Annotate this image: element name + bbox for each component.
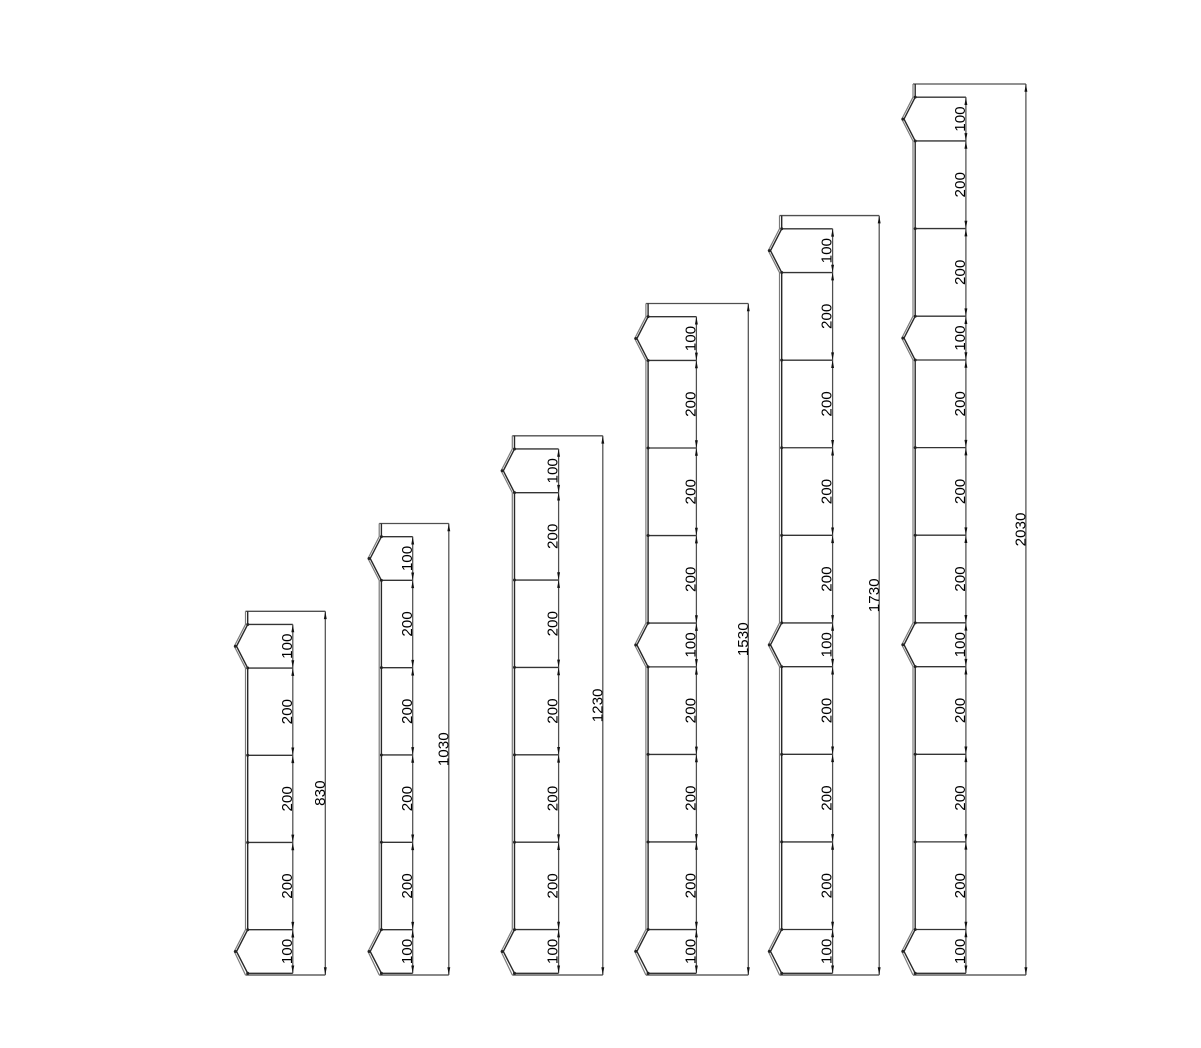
svg-text:100: 100	[819, 939, 836, 964]
svg-text:100: 100	[545, 458, 562, 483]
svg-text:200: 200	[952, 172, 969, 197]
svg-text:100: 100	[952, 632, 969, 657]
svg-text:1030: 1030	[436, 732, 453, 766]
svg-text:200: 200	[819, 479, 836, 504]
svg-text:100: 100	[279, 634, 296, 659]
svg-text:200: 200	[683, 392, 700, 417]
svg-text:200: 200	[819, 391, 836, 416]
svg-text:200: 200	[952, 391, 969, 416]
svg-text:2030: 2030	[1013, 513, 1030, 547]
svg-text:200: 200	[683, 567, 700, 592]
svg-text:200: 200	[683, 479, 700, 504]
svg-text:200: 200	[952, 785, 969, 810]
svg-text:1730: 1730	[866, 578, 883, 612]
svg-text:200: 200	[952, 873, 969, 898]
svg-text:200: 200	[819, 566, 836, 591]
svg-text:200: 200	[545, 611, 562, 636]
svg-text:100: 100	[399, 546, 416, 571]
svg-text:200: 200	[819, 785, 836, 810]
svg-text:100: 100	[952, 325, 969, 350]
svg-text:100: 100	[279, 939, 296, 964]
svg-text:100: 100	[683, 939, 700, 964]
svg-text:200: 200	[819, 698, 836, 723]
svg-text:200: 200	[683, 873, 700, 898]
svg-text:100: 100	[683, 632, 700, 657]
svg-text:200: 200	[952, 698, 969, 723]
svg-text:200: 200	[399, 786, 416, 811]
svg-text:100: 100	[952, 939, 969, 964]
svg-text:1530: 1530	[735, 622, 752, 656]
svg-text:830: 830	[312, 780, 329, 805]
svg-text:100: 100	[399, 939, 416, 964]
svg-text:200: 200	[819, 873, 836, 898]
svg-text:200: 200	[545, 786, 562, 811]
svg-text:200: 200	[279, 786, 296, 811]
svg-text:200: 200	[399, 611, 416, 636]
svg-text:200: 200	[545, 873, 562, 898]
svg-text:100: 100	[819, 632, 836, 657]
svg-text:1230: 1230	[590, 689, 607, 723]
svg-text:200: 200	[952, 260, 969, 285]
svg-text:200: 200	[545, 698, 562, 723]
svg-text:200: 200	[279, 699, 296, 724]
svg-text:200: 200	[819, 304, 836, 329]
svg-text:100: 100	[683, 326, 700, 351]
svg-text:100: 100	[545, 939, 562, 964]
svg-text:200: 200	[545, 524, 562, 549]
svg-text:200: 200	[399, 873, 416, 898]
svg-text:100: 100	[819, 238, 836, 263]
svg-text:200: 200	[952, 479, 969, 504]
svg-text:200: 200	[683, 698, 700, 723]
svg-text:200: 200	[399, 699, 416, 724]
svg-text:200: 200	[279, 873, 296, 898]
svg-text:200: 200	[683, 786, 700, 811]
svg-text:100: 100	[952, 106, 969, 131]
svg-text:200: 200	[952, 566, 969, 591]
